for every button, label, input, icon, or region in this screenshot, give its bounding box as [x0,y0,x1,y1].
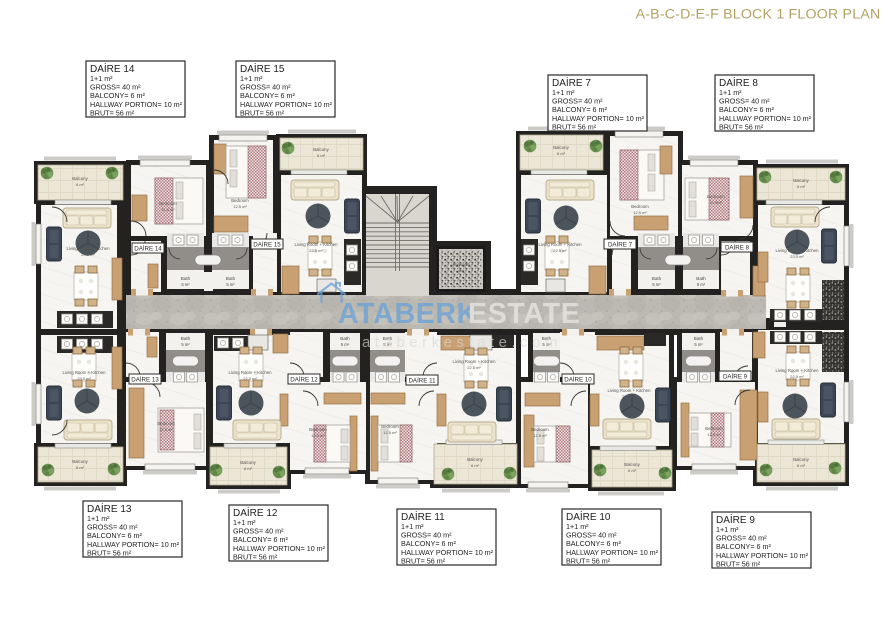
svg-text:22.5 m²: 22.5 m² [790,374,804,379]
svg-text:Living Room + Kitchen: Living Room + Kitchen [294,242,338,247]
svg-text:BRUT= 56 m²: BRUT= 56 m² [240,108,285,117]
svg-text:6 m²: 6 m² [76,182,85,187]
svg-text:6 m²: 6 m² [557,151,566,156]
svg-text:Balcony: Balcony [313,147,329,152]
svg-text:5 m²: 5 m² [181,282,190,287]
svg-text:23.5 m²: 23.5 m² [81,252,95,257]
svg-text:5 m²: 5 m² [697,282,706,287]
svg-text:Bedroom: Bedroom [381,424,399,429]
svg-text:Bath: Bath [226,276,236,281]
svg-text:23.5 m²: 23.5 m² [790,254,804,259]
svg-text:4 m²: 4 m² [458,269,464,273]
svg-text:Balcony: Balcony [467,457,483,462]
svg-text:5 m²: 5 m² [694,342,703,347]
svg-text:BRUT= 56 m²: BRUT= 56 m² [719,122,764,131]
svg-text:ataberkestate.com: ataberkestate.com [362,334,562,351]
svg-text:11.5 m²: 11.5 m² [161,207,175,212]
svg-text:BRUT= 56 m²: BRUT= 56 m² [233,552,278,561]
svg-text:Living Room + Kitchen: Living Room + Kitchen [538,242,582,247]
svg-text:DAİRE 8: DAİRE 8 [725,245,750,252]
svg-text:Bedroom: Bedroom [705,426,723,431]
svg-text:DAİRE 15: DAİRE 15 [253,242,281,249]
svg-text:22.5 m²: 22.5 m² [309,248,323,253]
svg-text:Bedroom: Bedroom [531,427,549,432]
svg-text:12.5 m²: 12.5 m² [633,210,647,215]
svg-text:Balcony: Balcony [793,457,809,462]
svg-text:12.5 m²: 12.5 m² [233,204,247,209]
svg-text:Living Room + Kitchen: Living Room + Kitchen [228,370,272,375]
svg-text:Living Room + Kitchen: Living Room + Kitchen [66,246,110,251]
svg-text:5 m²: 5 m² [341,342,350,347]
svg-text:6 m²: 6 m² [797,463,806,468]
svg-text:DAİRE 9: DAİRE 9 [723,374,748,381]
svg-text:22.5 m²: 22.5 m² [622,394,636,399]
svg-text:12.5 m²: 12.5 m² [311,433,325,438]
svg-text:DAİRE 13: DAİRE 13 [131,377,159,384]
svg-text:22.5 m²: 22.5 m² [553,248,567,253]
svg-text:BRUT= 56 m²: BRUT= 56 m² [401,556,446,565]
svg-text:5 m²: 5 m² [652,282,661,287]
svg-text:6 m²: 6 m² [471,463,480,468]
svg-text:12.5 m²: 12.5 m² [533,433,547,438]
svg-text:DAİRE 7: DAİRE 7 [608,242,633,249]
svg-text:5 m²: 5 m² [226,282,235,287]
svg-text:5 m²: 5 m² [181,342,190,347]
svg-text:Living Room + Kitchen: Living Room + Kitchen [452,359,496,364]
svg-text:DAİRE 10: DAİRE 10 [564,377,592,384]
svg-text:6 m²: 6 m² [76,465,85,470]
svg-text:BRUT= 56 m²: BRUT= 56 m² [90,108,135,117]
svg-text:Bath: Bath [181,276,191,281]
svg-text:Bath: Bath [696,276,706,281]
svg-text:Living Room + Kitchen: Living Room + Kitchen [775,368,819,373]
svg-text:DAİRE 11: DAİRE 11 [408,378,436,385]
svg-text:BRUT= 56 m²: BRUT= 56 m² [87,548,132,557]
svg-text:11.5m²: 11.5m² [710,200,723,205]
svg-text:BRUT= 56 m²: BRUT= 56 m² [566,556,611,565]
svg-text:DAİRE 12: DAİRE 12 [290,377,318,384]
svg-text:Bedroom: Bedroom [631,204,649,209]
svg-text:A-B-C-D-E-F BLOCK 1 FLOOR PLAN: A-B-C-D-E-F BLOCK 1 FLOOR PLAN [636,7,881,23]
svg-text:Bath: Bath [694,336,704,341]
svg-text:Bedroom: Bedroom [159,201,177,206]
svg-text:12.5 m²: 12.5 m² [383,430,397,435]
svg-text:Bedroom: Bedroom [707,194,725,199]
svg-text:ASANSÖR: ASANSÖR [452,263,470,267]
svg-text:12.5 m²: 12.5 m² [159,427,173,432]
svg-text:Balcony: Balcony [72,176,88,181]
svg-text:Bath: Bath [181,336,191,341]
svg-text:Living Room + Kitchen: Living Room + Kitchen [607,388,651,393]
svg-text:Balcony: Balcony [553,145,569,150]
svg-text:Bedroom: Bedroom [309,427,327,432]
svg-text:Balcony: Balcony [793,178,809,183]
svg-text:ESTATE: ESTATE [468,298,580,330]
svg-text:Bedroom: Bedroom [157,421,175,426]
svg-text:Balcony: Balcony [624,462,640,467]
svg-text:22.5 m²: 22.5 m² [467,365,481,370]
svg-text:BRUT= 56 m²: BRUT= 56 m² [552,122,597,131]
svg-text:22.5 m²: 22.5 m² [243,376,257,381]
svg-text:DAİRE 14: DAİRE 14 [134,246,162,253]
svg-text:12.5 m²: 12.5 m² [707,432,721,437]
svg-text:23.5 m²: 23.5 m² [77,376,91,381]
svg-text:Bath: Bath [652,276,662,281]
svg-text:Bedroom: Bedroom [231,198,249,203]
svg-text:6 m²: 6 m² [244,466,253,471]
svg-text:6 m²: 6 m² [797,184,806,189]
svg-text:Bath: Bath [340,336,350,341]
svg-text:6 m²: 6 m² [317,153,326,158]
svg-text:6 m²: 6 m² [628,468,637,473]
svg-text:BRUT= 56 m²: BRUT= 56 m² [716,559,761,568]
svg-text:Living Room + Kitchen: Living Room + Kitchen [62,370,106,375]
svg-text:Balcony: Balcony [240,460,256,465]
svg-text:Balcony: Balcony [72,459,88,464]
svg-text:Living Room + Kitchen: Living Room + Kitchen [775,248,819,253]
